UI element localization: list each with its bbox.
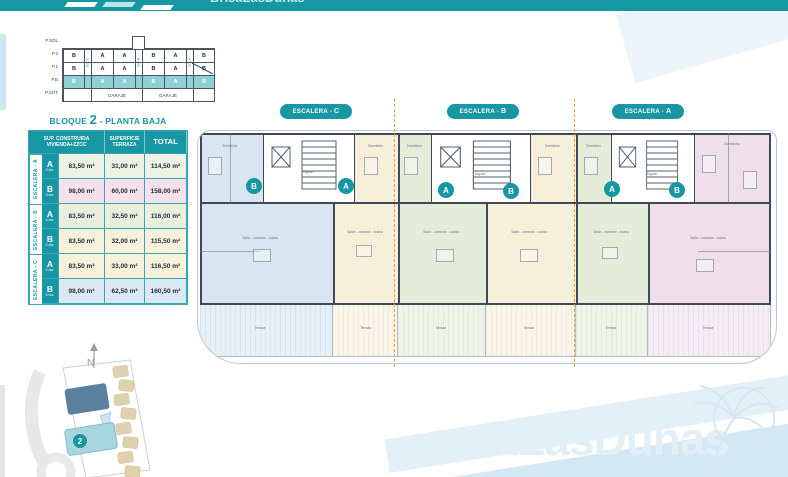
- summary-value-cell: 114,50 m²: [145, 154, 187, 179]
- room-label: Terraza: [582, 327, 640, 331]
- brand-logo-icon: [140, 5, 174, 10]
- floor-label: P.SOT: [30, 90, 58, 95]
- north-label: N: [87, 358, 94, 369]
- party-wall: [648, 203, 650, 303]
- partition: [200, 251, 260, 252]
- unit-badge-b-b: B: [503, 183, 519, 199]
- table: [602, 247, 618, 259]
- table: [520, 249, 538, 262]
- table: [696, 259, 714, 272]
- table-title: BLOQUE 2 - PLANTA BAJA: [28, 112, 188, 127]
- stack-cell: B: [63, 75, 84, 88]
- stack-cell: A: [164, 49, 186, 62]
- unit-badge-c-a: A: [338, 178, 354, 194]
- stack-cell: A: [113, 49, 135, 62]
- room-label: Terraza: [230, 327, 290, 331]
- stair-shaft-cell: [186, 75, 193, 88]
- stair-shaft-cell: [84, 75, 91, 88]
- escalera-c-badge: ESCALERA - C: [280, 104, 352, 119]
- summary-value-cell: 83,50 m²: [59, 254, 105, 279]
- unit-badge-a-b: B: [669, 182, 685, 198]
- summary-unit-cell: B2 dor.: [42, 229, 59, 254]
- roundabout: [41, 457, 71, 477]
- partition: [698, 251, 771, 252]
- table: [253, 249, 271, 262]
- stack-cell: B: [63, 62, 84, 75]
- site-map: 2 N: [8, 342, 208, 477]
- party-wall: [398, 133, 400, 303]
- summary-unit-cell: B3 dor.: [42, 279, 59, 304]
- section-divider: [574, 99, 575, 367]
- surface-summary: BLOQUE 2 - PLANTA BAJA SUP. CONSTRUIDA V…: [28, 112, 188, 305]
- summary-unit-cell: A2 dor.: [42, 154, 59, 179]
- room-label: Dormitorio: [577, 145, 610, 149]
- room-label: Terraza: [500, 327, 558, 331]
- stair-core-c: [263, 133, 355, 204]
- table-header-row: SUP. CONSTRUIDA VIVIENDA+ZZCC SUPERFICIE…: [28, 130, 188, 153]
- summary-unit-cell: A2 dor.: [42, 254, 59, 279]
- room-label: Salón - comedor - cocina: [500, 231, 558, 235]
- unit-dorms: 2 dor.: [46, 269, 55, 273]
- unit-a-b-living: [648, 203, 771, 303]
- garage-cell: GARAJE: [142, 88, 193, 101]
- summary-value-cell: 32,50 m²: [105, 204, 145, 229]
- stack-cell: B: [142, 75, 164, 88]
- unit-badge-c-b: B: [246, 178, 262, 194]
- room-label: Zaguán: [622, 173, 682, 177]
- unit-letter: A: [47, 160, 53, 169]
- summary-value-cell: 160,50 m²: [145, 279, 187, 304]
- stair-shaft-cell: [135, 75, 142, 88]
- bed: [702, 155, 716, 173]
- unit-badge-a-a: A: [604, 181, 620, 197]
- summary-value-cell: 62,50 m²: [105, 279, 145, 304]
- brand-logo-icon: [64, 2, 98, 7]
- stack-cell: A: [164, 62, 186, 75]
- stack-cell: A: [91, 75, 113, 88]
- room-label: Salón - comedor - cocina: [678, 237, 738, 241]
- table: [436, 249, 454, 262]
- title-prefix: BLOQUE: [50, 116, 88, 126]
- bed: [364, 157, 378, 175]
- room-label: Dormitorio: [202, 145, 258, 149]
- room-label: Salón - comedor - cocina: [412, 231, 470, 235]
- title-block-number: 2: [90, 112, 97, 127]
- unit-letter: B: [47, 185, 53, 194]
- room-label: Salón - comedor - cocina: [230, 237, 290, 241]
- party-wall: [486, 203, 488, 303]
- bed: [538, 157, 552, 175]
- diagonal-band: [0, 34, 6, 110]
- party-wall: [333, 203, 335, 303]
- block-2-number: 2: [78, 437, 83, 446]
- summary-value-cell: 32,00 m²: [105, 229, 145, 254]
- unit-badge-b-a: A: [438, 182, 454, 198]
- stack-cell: B: [193, 49, 214, 62]
- bed: [404, 157, 418, 175]
- stack-cell: B: [63, 49, 84, 62]
- escalera-letter: B: [501, 108, 506, 115]
- room-label: Zaguán: [450, 173, 510, 177]
- corridor-wall: [200, 202, 769, 204]
- summary-value-cell: 98,00 m²: [59, 179, 105, 204]
- room-label: Dormitorio: [399, 145, 430, 149]
- bed: [584, 157, 598, 175]
- room-label: Terraza: [338, 327, 393, 331]
- summary-table-body: ESCALERA - AA2 dor.83,50 m²31,00 m²114,5…: [28, 153, 188, 305]
- unit-dorms: 3 dor.: [46, 294, 55, 298]
- room-label: Salón - comedor - cocina: [336, 231, 394, 235]
- title-suffix: - PLANTA BAJA: [100, 116, 167, 126]
- unit-dorms: 2 dor.: [46, 169, 55, 173]
- summary-group-label: ESCALERA - C: [29, 254, 42, 304]
- summary-value-cell: 115,50 m²: [145, 229, 187, 254]
- unit-letter: B: [47, 285, 53, 294]
- summary-value-cell: 83,50 m²: [59, 229, 105, 254]
- summary-value-cell: 158,00 m²: [145, 179, 187, 204]
- summary-value-cell: 83,50 m²: [59, 154, 105, 179]
- summary-value-cell: 31,00 m²: [105, 154, 145, 179]
- brand-logo-icon: [102, 2, 136, 7]
- diagonal-band: [616, 0, 788, 83]
- stack-cell: B: [193, 75, 214, 88]
- floor-label: P.1: [30, 64, 58, 69]
- summary-value-cell: 83,50 m²: [59, 204, 105, 229]
- room-label: Dormitorio: [354, 145, 397, 149]
- room-label: Salón - comedor - cocina: [582, 231, 640, 235]
- floor-label: P.2: [30, 51, 58, 56]
- stair-shaft-label: ESC-C: [84, 49, 91, 75]
- stack-cell: B: [142, 62, 164, 75]
- unit-dorms: 3 dor.: [46, 194, 55, 198]
- escalera-label: ESCALERA -: [293, 109, 332, 115]
- summary-value-cell: 116,50 m²: [145, 254, 187, 279]
- diagonal-band: [0, 385, 5, 477]
- escalera-a-badge: ESCALERA - A: [612, 104, 684, 119]
- column-header-built: SUP. CONSTRUIDA VIVIENDA+ZZCC: [29, 131, 105, 153]
- summary-value-cell: 60,00 m²: [105, 179, 145, 204]
- brand-location: TORREVIEJA: [408, 0, 491, 3]
- summary-value-cell: 116,00 m²: [145, 204, 187, 229]
- bed: [208, 157, 222, 175]
- unit-letter: B: [47, 235, 53, 244]
- unit-letter: A: [47, 260, 53, 269]
- unit-dorms: 2 dor.: [46, 244, 55, 248]
- roof-shaft: [132, 36, 145, 50]
- palm-tree-icon: [664, 374, 786, 477]
- unit-letter: A: [47, 210, 53, 219]
- road: [31, 372, 46, 467]
- stair-shaft-label: ESC-B: [135, 49, 142, 75]
- section-divider: [394, 99, 395, 367]
- room-label: Dormitorio: [530, 145, 575, 149]
- stack-grid: BAABABBAABABBAABABESC-CESC-BESC-AGARAJEG…: [62, 48, 215, 102]
- stack-cell: B: [142, 49, 164, 62]
- floor-label: P.SOL: [30, 38, 58, 43]
- brand-name: BrisaLasDunas: [210, 0, 305, 5]
- room-label: Terraza: [678, 327, 738, 331]
- escalera-letter: C: [334, 108, 339, 115]
- escalera-b-badge: ESCALERA - B: [447, 104, 519, 119]
- unit-dorms: 2 dor.: [46, 219, 55, 223]
- page: saLasDunas BrisaLasDunas TORREVIEJA BAAB…: [0, 0, 788, 477]
- stack-cell: A: [164, 75, 186, 88]
- summary-value-cell: 98,00 m²: [59, 279, 105, 304]
- stack-cell: A: [113, 75, 135, 88]
- summary-unit-cell: B3 dor.: [42, 179, 59, 204]
- north-arrow-head: [90, 343, 98, 351]
- column-header-terrace: SUPERFICIE TERRAZA: [105, 131, 145, 153]
- summary-unit-cell: A2 dor.: [42, 204, 59, 229]
- header-bar: BrisaLasDunas TORREVIEJA: [0, 0, 788, 11]
- party-wall: [576, 133, 578, 303]
- escalera-label: ESCALERA -: [460, 109, 499, 115]
- escalera-label: ESCALERA -: [625, 109, 664, 115]
- basement-cell: [63, 88, 91, 101]
- floor-plan: B A A B A B Salón - comedor - cocina Sal…: [197, 130, 777, 364]
- summary-group-label: ESCALERA - B: [29, 204, 42, 254]
- building-stack-diagram: BAABABBAABABBAABABESC-CESC-BESC-AGARAJEG…: [30, 36, 226, 102]
- bed: [743, 171, 757, 189]
- roof-diagonal: [192, 63, 213, 74]
- room-label: Terraza: [412, 327, 470, 331]
- stack-cell: A: [91, 49, 113, 62]
- garage-cell: GARAJE: [91, 88, 142, 101]
- room-label: Zaguán: [278, 171, 338, 175]
- summary-group-label: ESCALERA - A: [29, 154, 42, 204]
- table: [356, 245, 372, 257]
- floor-label: P.B: [30, 77, 58, 82]
- basement-cell: [193, 88, 214, 101]
- stack-cell: A: [113, 62, 135, 75]
- column-header-total: TOTAL: [145, 131, 187, 153]
- escalera-letter: A: [666, 108, 671, 115]
- stack-cell: A: [91, 62, 113, 75]
- room-label: Dormitorio: [695, 143, 769, 147]
- summary-value-cell: 33,00 m²: [105, 254, 145, 279]
